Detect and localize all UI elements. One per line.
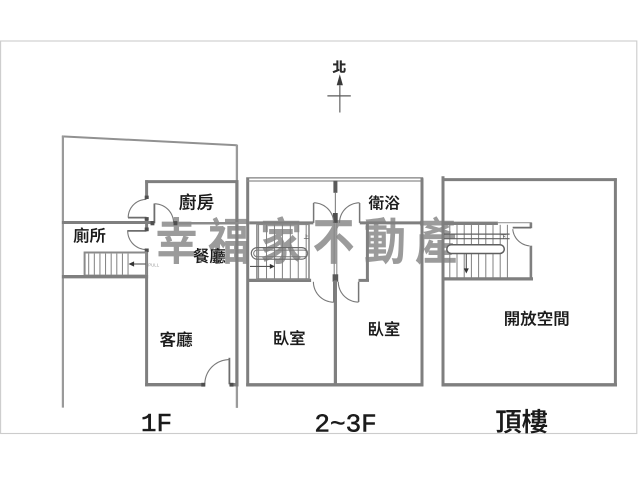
- svg-text:PULL: PULL: [148, 262, 160, 267]
- svg-text:2~3F: 2~3F: [314, 410, 376, 440]
- svg-text:1F: 1F: [141, 409, 172, 439]
